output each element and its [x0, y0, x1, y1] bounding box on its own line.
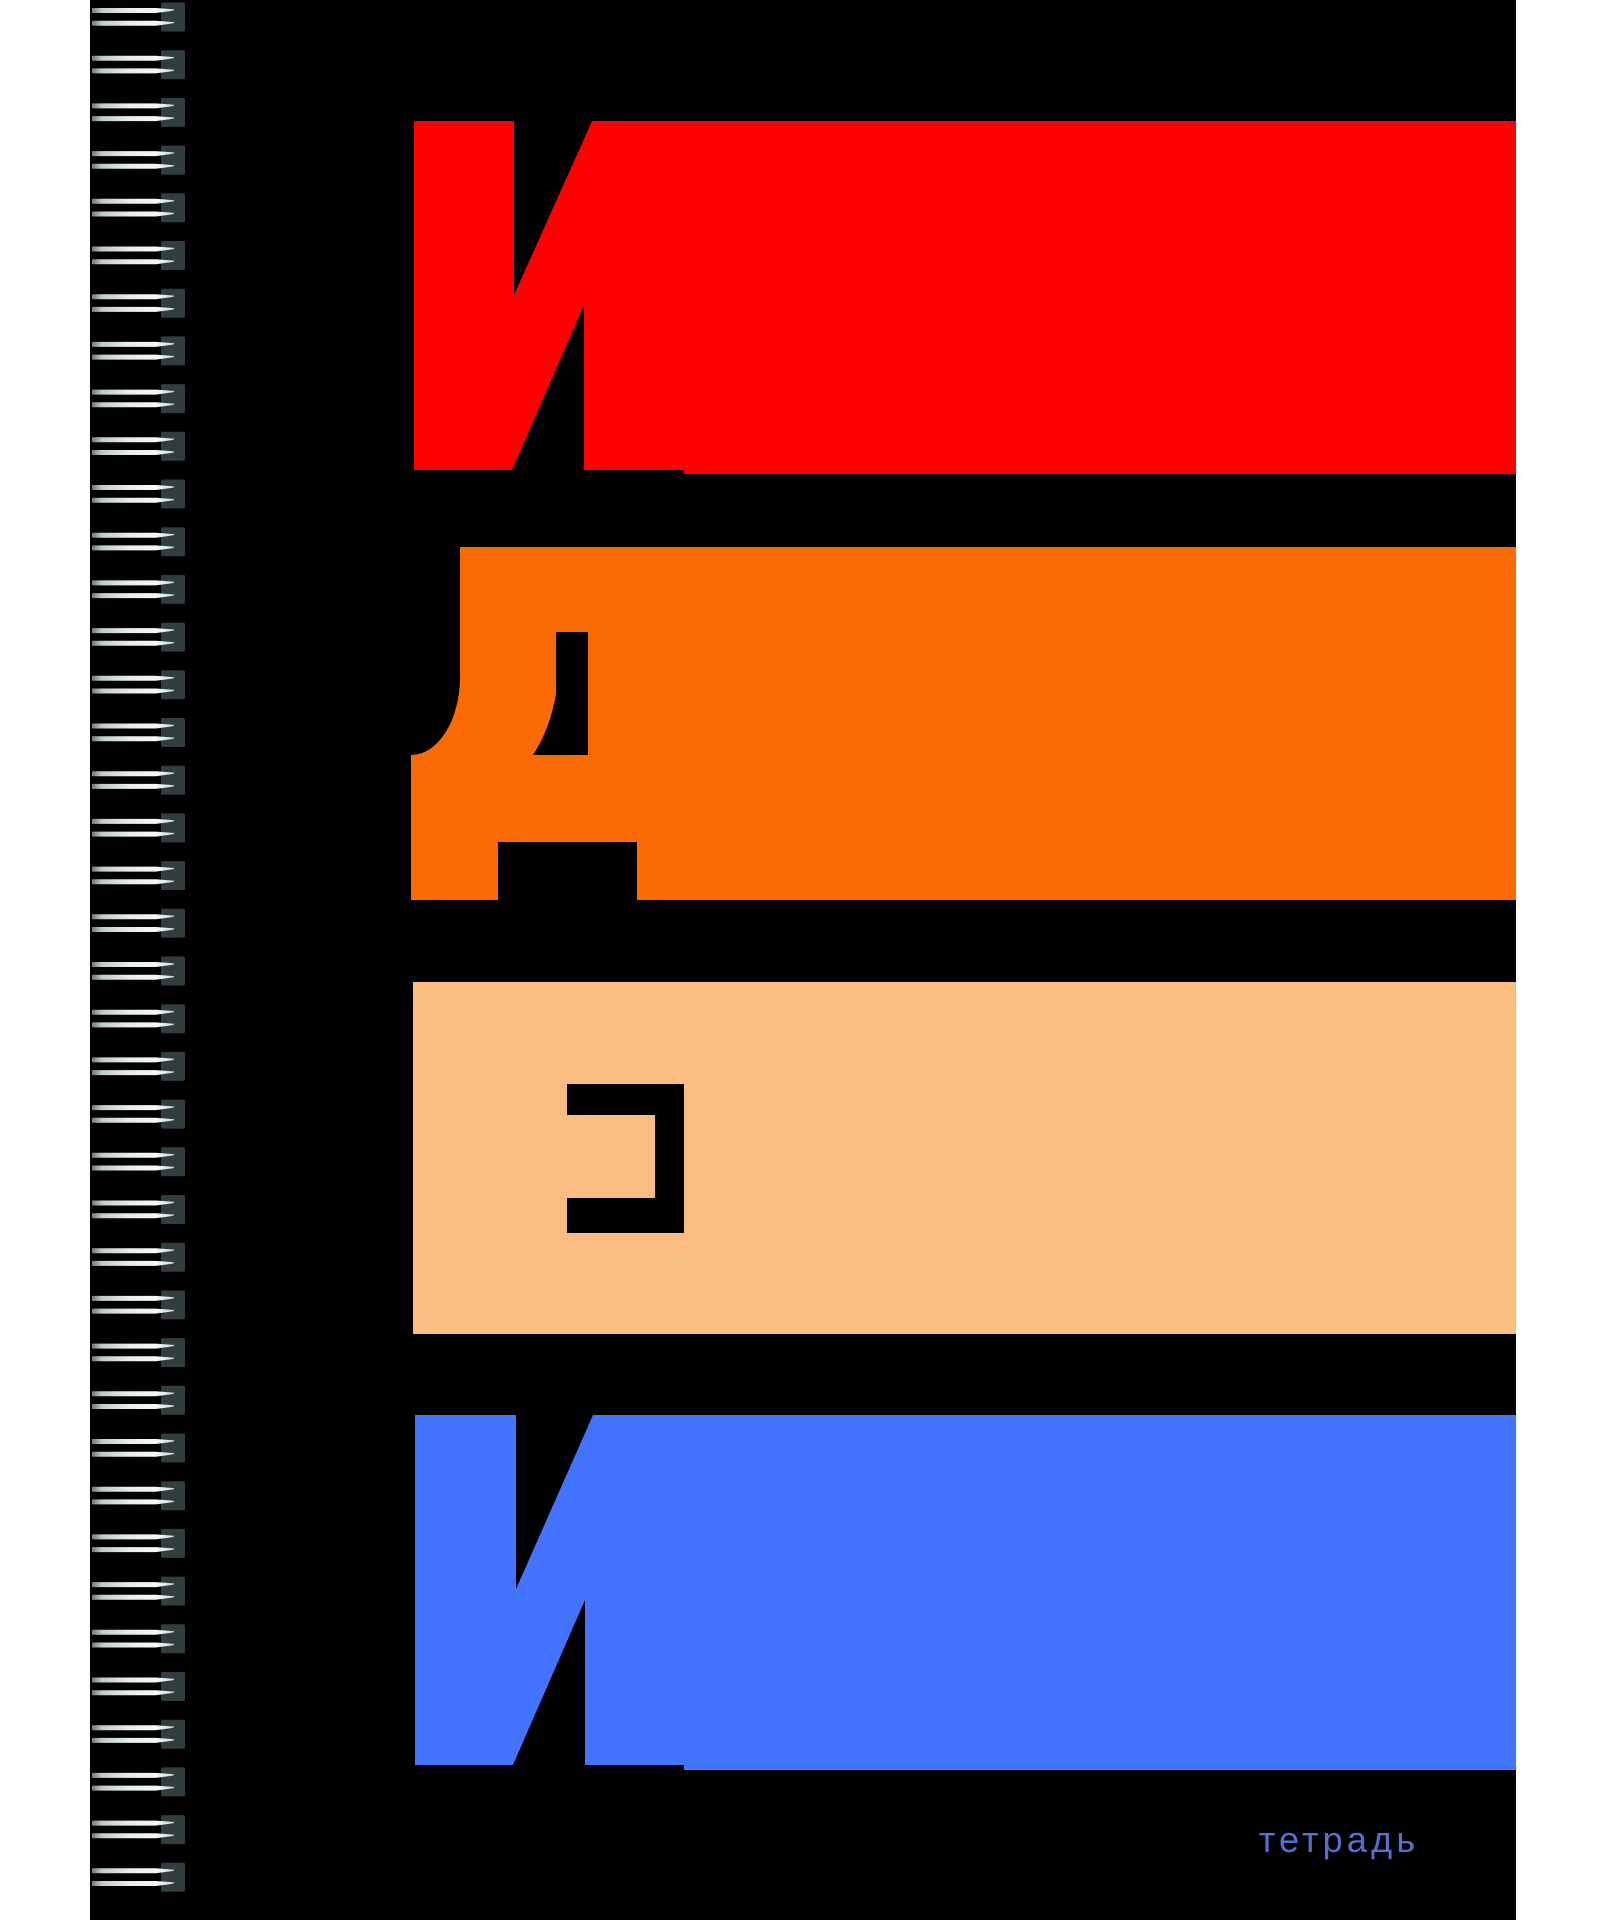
- svg-text:тетрадь: тетрадь: [1259, 1819, 1420, 1860]
